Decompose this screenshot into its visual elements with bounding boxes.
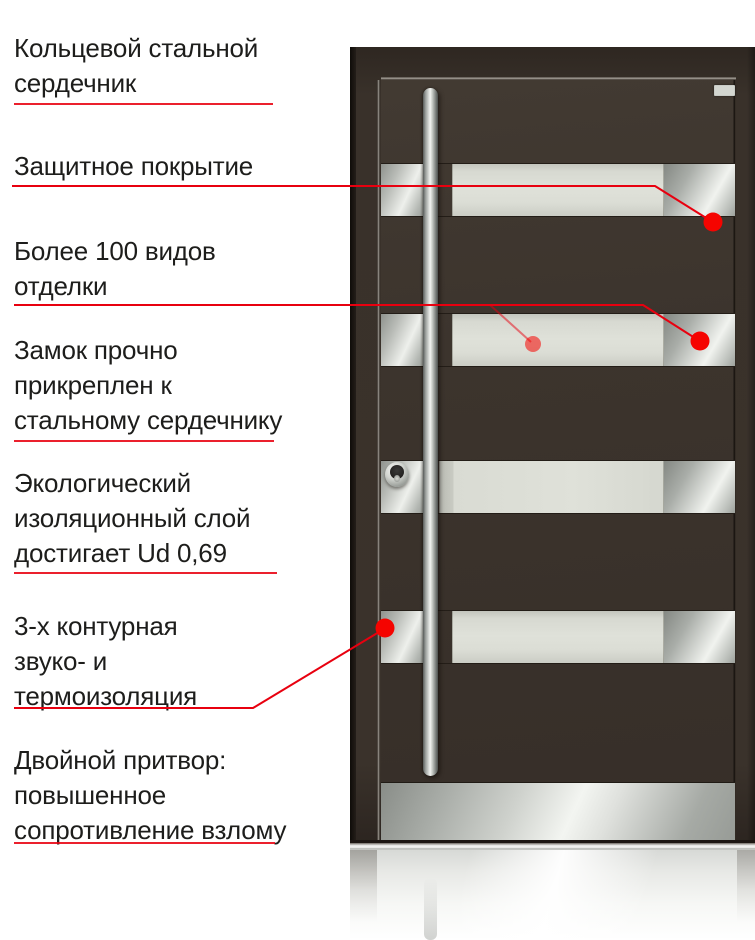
glass-panel bbox=[452, 314, 664, 366]
door-frame-edge-left bbox=[350, 47, 356, 843]
annotation-line: сопротивление взлому bbox=[14, 813, 286, 848]
steel-panel-right bbox=[664, 314, 735, 366]
annotation-line: термоизоляция bbox=[14, 679, 197, 714]
annotation-three-contour-insulation: 3-х контурная звуко- и термоизоляция bbox=[14, 609, 197, 714]
threshold bbox=[350, 843, 755, 850]
annotation-line: Замок прочно bbox=[14, 333, 282, 368]
floor-light-streak bbox=[350, 850, 755, 940]
annotation-line: звуко- и bbox=[14, 644, 197, 679]
kick-plate bbox=[381, 782, 735, 842]
annotation-line: Двойной притвор: bbox=[14, 743, 286, 778]
lock-keyhole-pin bbox=[394, 475, 400, 482]
brand-plate bbox=[714, 85, 735, 96]
door-hinge-gap-line bbox=[377, 80, 380, 843]
annotation-eco-insulation: Экологический изоляционный слой достигае… bbox=[14, 466, 250, 571]
annotation-line: Более 100 видов bbox=[14, 234, 216, 269]
annotation-line: отделки bbox=[14, 269, 216, 304]
lock-cylinder bbox=[385, 462, 409, 487]
annotation-line: достигает Ud 0,69 bbox=[14, 536, 250, 571]
steel-panel-right bbox=[664, 611, 735, 663]
annotation-finishes: Более 100 видов отделки bbox=[14, 234, 216, 304]
leaf-top-groove bbox=[381, 77, 736, 80]
door-handle-bar bbox=[423, 88, 438, 776]
floor-reflection bbox=[350, 850, 755, 940]
annotation-line: Кольцевой стальной bbox=[14, 31, 258, 66]
annotation-protective-coating: Защитное покрытие bbox=[14, 149, 253, 184]
glass-panel bbox=[452, 611, 664, 663]
steel-panel-left bbox=[381, 611, 423, 663]
annotation-line: 3-х контурная bbox=[14, 609, 197, 644]
steel-panel-right bbox=[664, 461, 735, 513]
annotation-line: повышенное bbox=[14, 778, 286, 813]
annotation-line: прикреплен к bbox=[14, 368, 282, 403]
door-frame-shade-right bbox=[747, 47, 755, 843]
steel-panel-right bbox=[664, 164, 735, 216]
annotation-line: стальному сердечнику bbox=[14, 403, 282, 438]
glass-panel bbox=[452, 164, 664, 216]
annotation-double-rebate: Двойной притвор: повышенное сопротивлени… bbox=[14, 743, 286, 848]
annotation-line: изоляционный слой bbox=[14, 501, 250, 536]
annotation-line: Экологический bbox=[14, 466, 250, 501]
annotation-ring-steel-core: Кольцевой стальной сердечник bbox=[14, 31, 258, 101]
glass-panel bbox=[439, 461, 664, 513]
infographic-root: Кольцевой стальной сердечник Защитное по… bbox=[0, 0, 755, 940]
steel-panel-left bbox=[381, 164, 423, 216]
annotation-line: сердечник bbox=[14, 66, 258, 101]
steel-panel-left bbox=[381, 314, 423, 366]
annotation-line: Защитное покрытие bbox=[14, 149, 253, 184]
annotation-lock-attached: Замок прочно прикреплен к стальному серд… bbox=[14, 333, 282, 438]
